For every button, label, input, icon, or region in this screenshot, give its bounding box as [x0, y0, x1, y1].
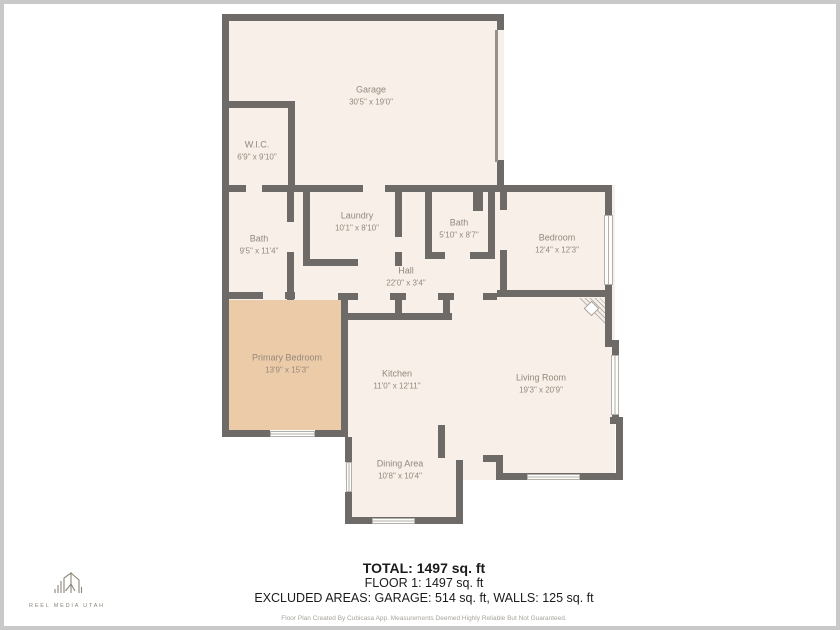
wall-segment: [497, 14, 504, 30]
room-dims: 19'3" x 20'9": [516, 385, 566, 397]
wall-segment: [473, 185, 483, 211]
wall-segment: [605, 290, 612, 345]
wall-segment: [456, 460, 463, 524]
wall-segment: [287, 192, 294, 222]
room-label-bath-primary: Bath 9'5" x 11'4": [240, 233, 279, 258]
room-label-garage: Garage 30'5" x 19'0": [349, 84, 393, 109]
wall-segment: [262, 185, 363, 192]
area-summary: TOTAL: 1497 sq. ft FLOOR 1: 1497 sq. ft …: [4, 560, 840, 622]
room-label-dining-area: Dining Area 10'8" x 10'4": [377, 458, 424, 483]
room-name: Garage: [349, 84, 393, 97]
floor1-area-text: FLOOR 1: 1497 sq. ft: [4, 576, 840, 591]
room-name: Dining Area: [377, 458, 424, 471]
room-label-bedroom: Bedroom 12'4" x 12'3": [535, 232, 579, 257]
room-name: Bath: [439, 217, 478, 230]
wall-segment: [605, 340, 619, 347]
room-dims: 10'1" x 8'10": [335, 223, 379, 235]
disclaimer-text: Floor Plan Created By Cubicasa App. Meas…: [4, 615, 840, 622]
window: [372, 518, 415, 524]
wall-segment: [497, 290, 612, 297]
room-dims: 13'9" x 15'3": [252, 365, 322, 377]
wall-segment: [348, 313, 452, 320]
room-dims: 12'4" x 12'3": [535, 245, 579, 257]
room-name: Primary Bedroom: [252, 352, 322, 365]
room-name: Laundry: [335, 210, 379, 223]
room-name: Living Room: [516, 372, 566, 385]
wall-segment: [222, 292, 263, 299]
wall-segment: [222, 430, 270, 437]
room-label-wic: W.I.C. 6'9" x 9'10": [237, 139, 276, 164]
wall-segment: [288, 101, 295, 192]
room-label-bath-hall: Bath 5'10" x 8'7": [439, 217, 478, 242]
wall-segment: [222, 101, 295, 108]
wall-segment: [616, 420, 623, 480]
wall-segment: [285, 292, 295, 299]
room-label-living-room: Living Room 19'3" x 20'9": [516, 372, 566, 397]
wall-segment: [341, 293, 348, 437]
floor-plan: Garage 30'5" x 19'0" W.I.C. 6'9" x 9'10"…: [0, 0, 840, 630]
wall-segment: [222, 14, 229, 437]
room-dims: 5'10" x 8'7": [439, 230, 478, 242]
company-logo: REEL MEDIA UTAH: [22, 570, 112, 609]
room-dims: 9'5" x 11'4": [240, 246, 279, 258]
wall-segment: [222, 14, 504, 21]
room-label-hall: Hall 22'0" x 3'4": [386, 265, 425, 290]
room-name: Kitchen: [373, 368, 420, 381]
wall-segment: [497, 185, 612, 192]
logo-text: REEL MEDIA UTAH: [22, 603, 112, 609]
room-name: Bedroom: [535, 232, 579, 245]
wall-segment: [345, 437, 352, 462]
room-label-primary-bedroom: Primary Bedroom 13'9" x 15'3": [252, 352, 322, 377]
wall-segment: [303, 259, 358, 266]
garage-door-line: [495, 30, 498, 162]
room-dims: 22'0" x 3'4": [386, 278, 425, 290]
wall-segment: [470, 252, 495, 259]
room-name: Bath: [240, 233, 279, 246]
window: [527, 474, 580, 480]
logo-house-icon: [50, 570, 84, 596]
room-label-kitchen: Kitchen 11'0" x 12'11": [373, 368, 420, 393]
wall-segment: [438, 425, 445, 458]
total-area-text: TOTAL: 1497 sq. ft: [4, 560, 840, 576]
wall-segment: [425, 192, 432, 258]
excluded-areas-text: EXCLUDED AREAS: GARAGE: 514 sq. ft, WALL…: [4, 591, 840, 606]
room-name: Hall: [386, 265, 425, 278]
room-dims: 10'8" x 10'4": [377, 471, 424, 483]
room-dims: 30'5" x 19'0": [349, 97, 393, 109]
window: [611, 355, 619, 415]
wall-segment: [500, 185, 507, 210]
window: [604, 215, 613, 285]
wall-segment: [395, 192, 402, 237]
room-name: W.I.C.: [237, 139, 276, 152]
wall-segment: [229, 185, 246, 192]
room-dims: 6'9" x 9'10": [237, 152, 276, 164]
window: [270, 431, 315, 437]
wall-segment: [315, 430, 348, 437]
window: [346, 462, 352, 492]
room-label-laundry: Laundry 10'1" x 8'10": [335, 210, 379, 235]
wall-segment: [488, 192, 495, 258]
wall-segment: [425, 252, 445, 259]
wall-segment: [483, 293, 497, 300]
wall-segment: [303, 192, 310, 259]
room-dims: 11'0" x 12'11": [373, 381, 420, 393]
